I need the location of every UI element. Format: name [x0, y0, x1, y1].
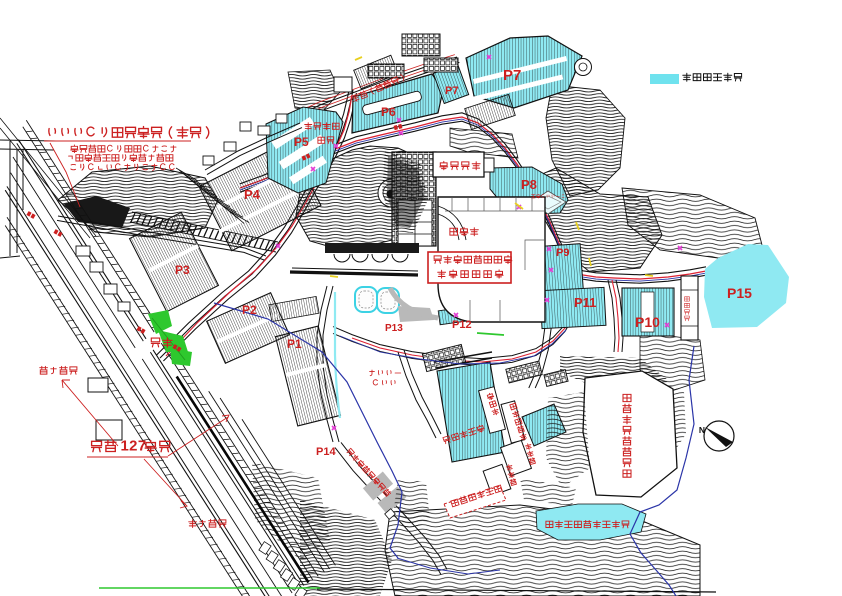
svg-text:P1: P1 [287, 337, 302, 351]
svg-text:P12: P12 [452, 319, 472, 331]
svg-text:P4: P4 [244, 187, 261, 202]
svg-text:P2: P2 [242, 303, 257, 317]
svg-text:P5: P5 [294, 135, 309, 149]
svg-text:P15: P15 [727, 285, 752, 301]
svg-text:P7: P7 [503, 67, 521, 84]
svg-text:P13: P13 [385, 323, 403, 334]
svg-text:N: N [699, 425, 705, 435]
svg-text:P10: P10 [635, 314, 660, 330]
svg-text:7: 7 [138, 439, 146, 455]
svg-text:P6: P6 [381, 105, 396, 119]
svg-text:P3: P3 [175, 263, 190, 277]
svg-text:P14: P14 [316, 446, 336, 458]
svg-text:P8: P8 [521, 177, 537, 192]
svg-text:P7: P7 [445, 85, 458, 97]
svg-text:1: 1 [120, 439, 128, 455]
svg-text:P11: P11 [574, 295, 596, 310]
svg-text:2: 2 [129, 439, 137, 455]
svg-text:P9: P9 [556, 247, 569, 259]
